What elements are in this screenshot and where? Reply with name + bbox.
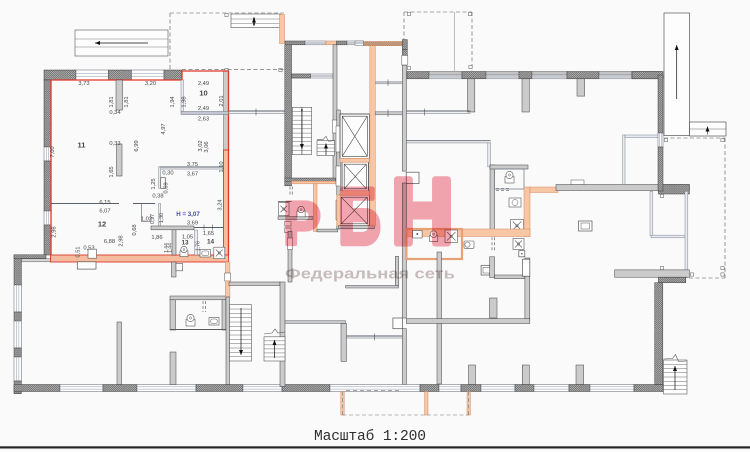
svg-text:Масштаб 1:200: Масштаб 1:200 bbox=[314, 428, 426, 445]
svg-text:2,98: 2,98 bbox=[119, 235, 125, 246]
svg-text:6,15: 6,15 bbox=[99, 200, 110, 206]
svg-text:2,01: 2,01 bbox=[219, 95, 225, 106]
svg-text:2,63: 2,63 bbox=[198, 117, 209, 123]
svg-text:3,24: 3,24 bbox=[218, 199, 224, 211]
svg-text:0,38: 0,38 bbox=[152, 194, 163, 200]
svg-text:1,44: 1,44 bbox=[168, 243, 174, 253]
svg-text:2,98: 2,98 bbox=[52, 226, 58, 237]
svg-text:2,49: 2,49 bbox=[198, 106, 209, 112]
svg-text:Б: Б bbox=[339, 172, 381, 261]
svg-text:1,65: 1,65 bbox=[203, 231, 214, 237]
svg-text:3,69: 3,69 bbox=[187, 221, 198, 227]
svg-text:14: 14 bbox=[207, 239, 215, 246]
svg-text:1,94: 1,94 bbox=[170, 96, 176, 108]
svg-text:1,86: 1,86 bbox=[151, 235, 162, 241]
svg-text:0,51: 0,51 bbox=[76, 247, 82, 258]
svg-text:6,88: 6,88 bbox=[104, 239, 115, 245]
svg-text:Федеральная сеть: Федеральная сеть bbox=[285, 267, 455, 283]
svg-text:7,00: 7,00 bbox=[50, 146, 56, 157]
svg-text:1,65: 1,65 bbox=[109, 166, 115, 177]
svg-text:1,81: 1,81 bbox=[124, 96, 130, 107]
svg-text:0,97: 0,97 bbox=[150, 214, 156, 224]
svg-text:H = 3,07: H = 3,07 bbox=[176, 211, 200, 218]
svg-text:1,05: 1,05 bbox=[182, 235, 193, 241]
svg-text:Н: Н bbox=[392, 161, 454, 263]
svg-text:3,20: 3,20 bbox=[145, 81, 156, 87]
svg-text:3,73: 3,73 bbox=[78, 81, 89, 87]
svg-text:1,25: 1,25 bbox=[151, 178, 157, 189]
svg-text:13: 13 bbox=[181, 240, 189, 247]
svg-text:0,68: 0,68 bbox=[132, 224, 138, 235]
svg-text:0,33: 0,33 bbox=[109, 141, 120, 147]
svg-text:1,98: 1,98 bbox=[182, 96, 188, 107]
svg-text:2,49: 2,49 bbox=[198, 81, 209, 87]
svg-text:1,81: 1,81 bbox=[109, 96, 115, 107]
svg-text:3,06: 3,06 bbox=[204, 141, 210, 152]
svg-text:6,99: 6,99 bbox=[134, 140, 140, 151]
svg-text:12: 12 bbox=[98, 220, 106, 229]
svg-text:11: 11 bbox=[78, 141, 86, 150]
svg-text:0,30: 0,30 bbox=[162, 171, 173, 177]
svg-text:4,97: 4,97 bbox=[161, 123, 167, 134]
svg-text:1,30: 1,30 bbox=[159, 213, 165, 223]
svg-text:3,67: 3,67 bbox=[187, 172, 198, 178]
svg-text:1,76: 1,76 bbox=[196, 241, 202, 251]
svg-text:0,69: 0,69 bbox=[164, 182, 170, 193]
svg-text:3,75: 3,75 bbox=[187, 162, 198, 168]
svg-text:Р: Р bbox=[284, 190, 321, 257]
svg-text:6,07: 6,07 bbox=[99, 209, 110, 215]
svg-text:10: 10 bbox=[199, 89, 207, 98]
svg-text:0,34: 0,34 bbox=[109, 110, 121, 116]
svg-text:0,53: 0,53 bbox=[83, 246, 94, 252]
